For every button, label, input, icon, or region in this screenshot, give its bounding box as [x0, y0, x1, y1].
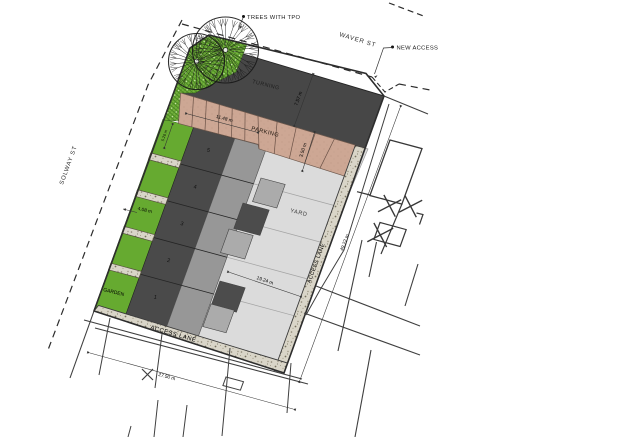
svg-text:TREES WITH TPO: TREES WITH TPO	[247, 15, 301, 21]
svg-text:NEW ACCESS: NEW ACCESS	[397, 46, 439, 52]
